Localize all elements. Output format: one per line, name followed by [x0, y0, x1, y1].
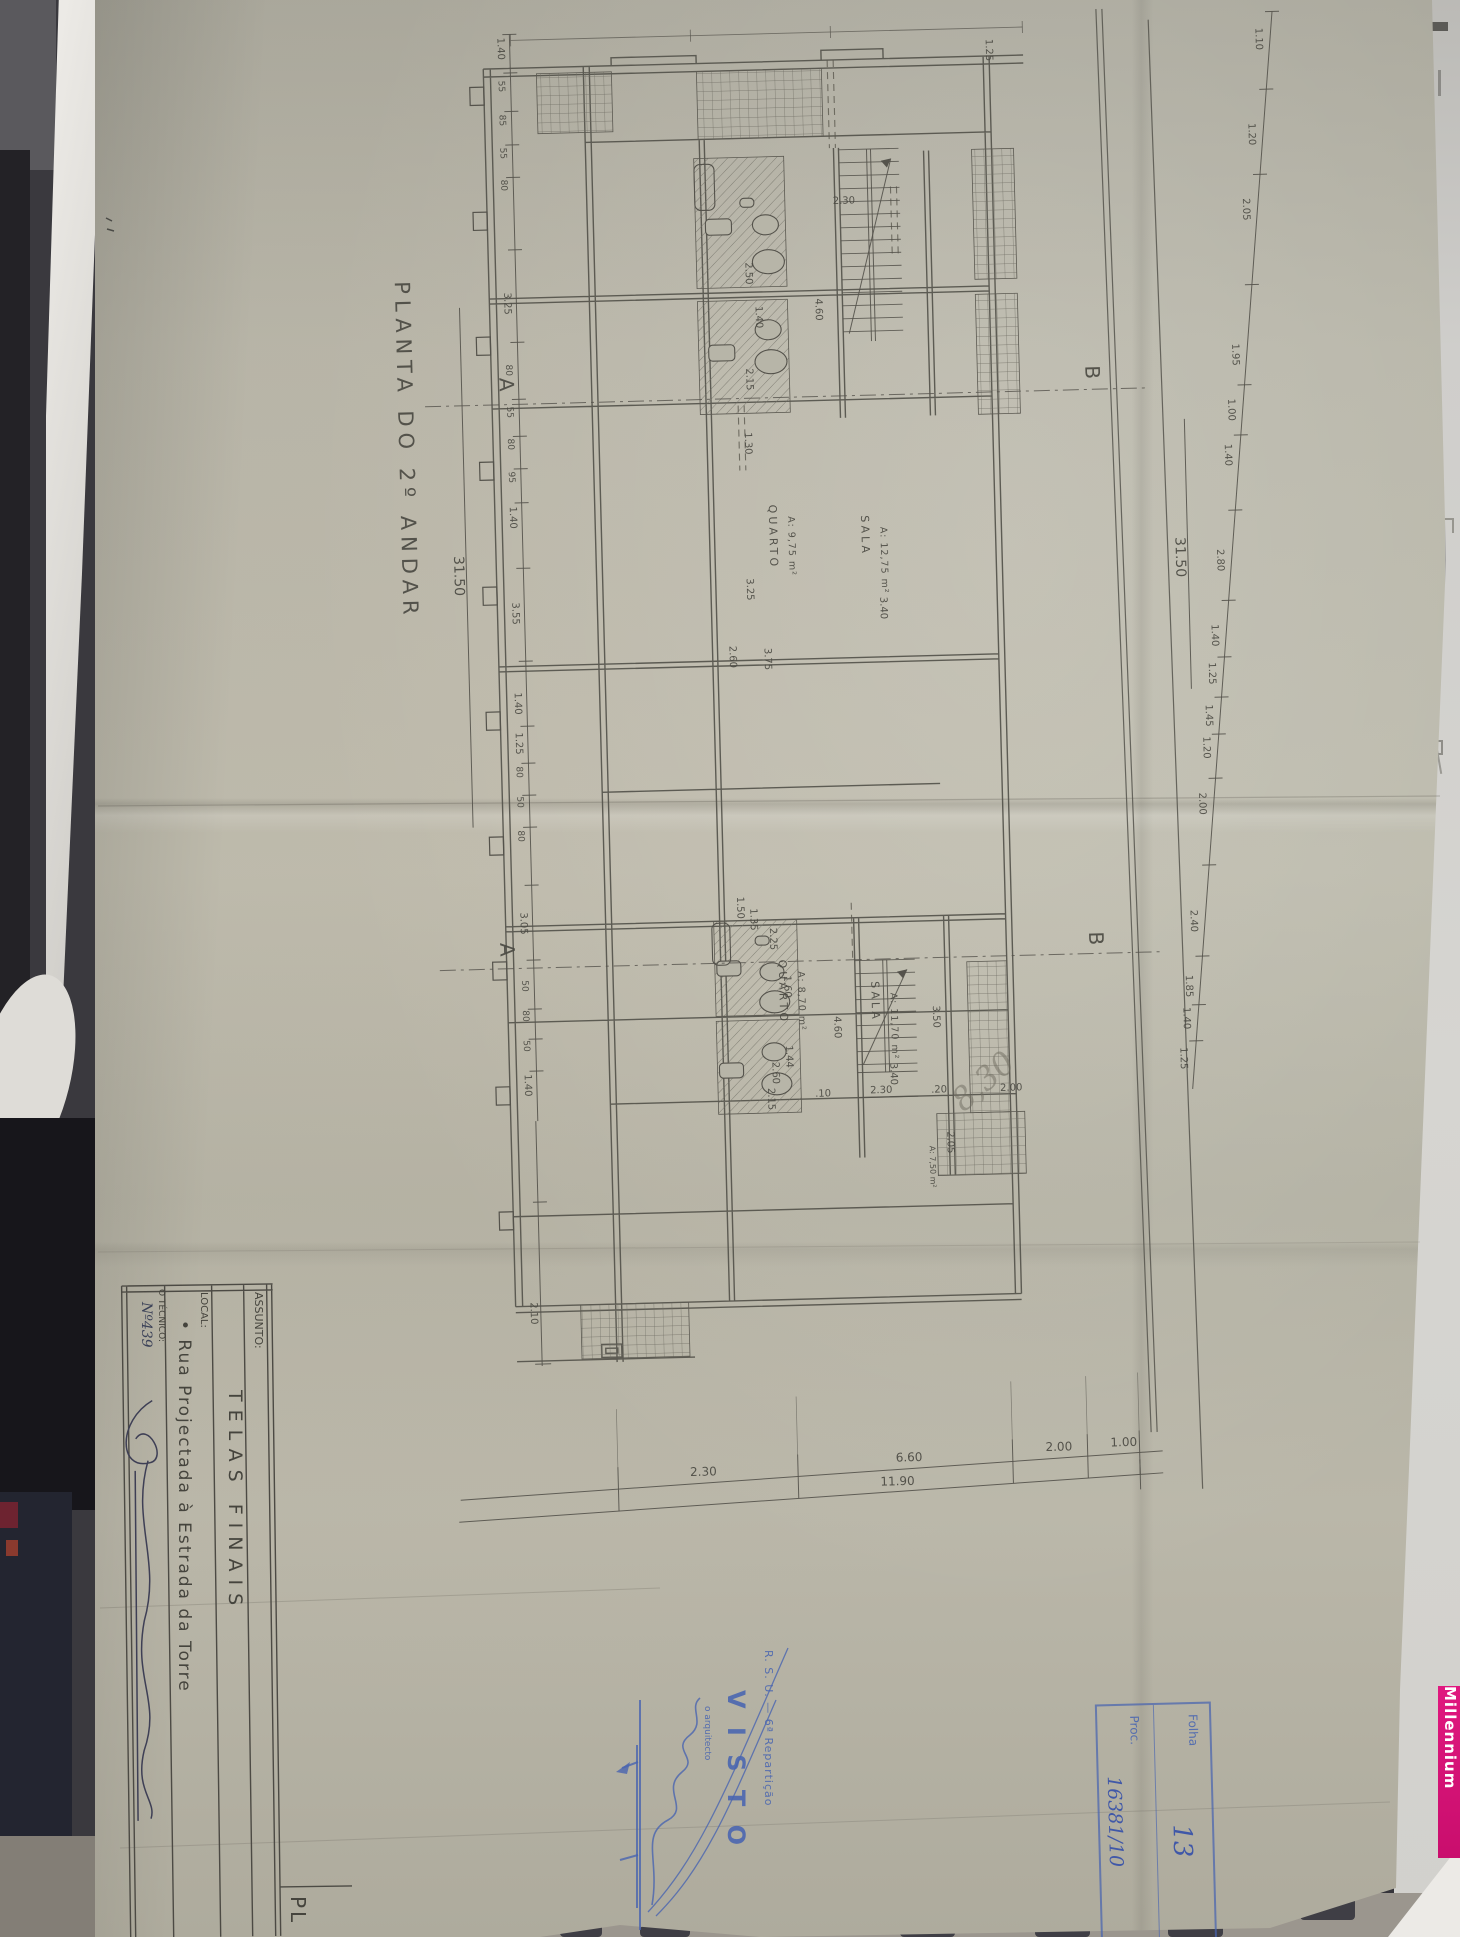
tecnico-number: Nº439 [138, 1302, 154, 1348]
facade-pilaster [493, 962, 507, 980]
section-marker-b: B [1080, 365, 1104, 379]
balcony-area-label: A: 7,50 m² [928, 1146, 938, 1188]
assunto-value: TELAS FINAIS [224, 1390, 246, 1613]
right-chain-dim: 1.45 [1203, 704, 1215, 727]
left-chain-dim: 50 [514, 796, 524, 808]
left-chain-dim: 80 [505, 438, 515, 450]
right-chain-dim: 2.00 [1196, 792, 1208, 815]
proc-column: Proc. 16381/10 [1097, 1705, 1159, 1937]
facade-pilaster [499, 1212, 513, 1230]
left-chain-dim: 55 [496, 81, 506, 93]
dimension-label: 2.50 [742, 262, 754, 285]
facade-pilaster [486, 712, 500, 730]
balcony-tiled-floor [972, 148, 1017, 279]
bottom-chain-total: 11.90 [880, 1474, 915, 1489]
proc-value: 16381/10 [1103, 1776, 1127, 1868]
right-chain-dim: 1.40 [1180, 1007, 1192, 1030]
left-chain-dim: 50 [521, 1040, 531, 1052]
left-chain-dim: 50 [519, 980, 529, 992]
visto-stamp-word: V I S T O [722, 1690, 750, 1850]
left-chain-dim: 3.25 [501, 292, 513, 315]
bath-fixture [740, 198, 754, 207]
right-chain-total: 31.50 [1171, 537, 1188, 577]
visto-stamp-line1: R. S. U. — 6ª Repartição [762, 1650, 775, 1807]
left-chain-dim: 1.25 [513, 732, 525, 755]
room-area-label: A: 12,75 m² [877, 527, 890, 594]
left-chain-dim: 2.10 [528, 1302, 540, 1325]
right-chain-dim: 2.05 [1240, 198, 1252, 221]
right-chain-dim: 1.40 [1209, 624, 1221, 647]
left-chain-total: 31.50 [450, 556, 467, 596]
wc-fixture [752, 214, 779, 235]
right-chain-dim: 1.25 [1177, 1047, 1189, 1070]
folha-label: Folha [1186, 1714, 1201, 1746]
bottom-chain-dim: 6.60 [896, 1450, 923, 1465]
bath-fixture [709, 345, 735, 362]
dimension-label: 3.40 [887, 1063, 899, 1086]
dimension-label: 1.25 [983, 39, 995, 62]
photo-of-floor-plan: Millennium [0, 0, 1460, 1937]
stair-lower [897, 969, 907, 978]
section-marker-a: A [494, 377, 518, 392]
left-chain-dim: 80 [503, 364, 513, 376]
facade-pilaster [489, 837, 503, 855]
left-chain-dim: 85 [496, 115, 506, 127]
dimension-label: 4.60 [812, 298, 824, 321]
section-marker-a: A [495, 942, 519, 957]
dimension-label: 1.60 [781, 975, 793, 998]
room-area-label: A: 8,70 m² [795, 971, 808, 1031]
facade-pilaster [476, 337, 490, 355]
margin-handwriting-marks [106, 218, 114, 231]
left-chain-dim: 95 [506, 471, 516, 483]
section-marker-b: B [1084, 931, 1108, 945]
dimension-label: 2.05 [944, 1131, 956, 1154]
left-chain-dim: 55 [504, 406, 514, 418]
floor-plan-drawing: PLANTA DO 2º ANDARQUARTOA: 9,75 m²SALAA:… [0, 0, 1460, 1937]
facade-pilaster [483, 587, 497, 605]
left-chain-dim: 3.55 [509, 602, 521, 625]
dimension-label: 2.15 [765, 1088, 777, 1111]
dimension-label: 2.30 [833, 195, 856, 207]
folha-proc-stamp-box: Proc. 16381/10 Folha 13 [1095, 1702, 1217, 1937]
dimension-label: 1.50 [734, 897, 746, 920]
left-chain-dim: 80 [514, 766, 524, 778]
bottom-chain-dim: 1.00 [1110, 1435, 1137, 1450]
right-chain-dim: 1.00 [1225, 399, 1237, 422]
right-chain-dim: 1.10 [1252, 28, 1264, 51]
right-chain-dim: 2.40 [1187, 910, 1199, 933]
dimension-label: 1.35 [747, 908, 759, 931]
facade-pilaster [473, 212, 487, 230]
left-chain-dim: 80 [498, 180, 508, 192]
bottom-chain-dim: 2.00 [1045, 1439, 1072, 1454]
dimension-label: .10 [815, 1088, 831, 1099]
left-chain-dim: 80 [520, 1010, 530, 1022]
dimension-label: 1.30 [742, 432, 754, 455]
left-chain-dim: 1.40 [522, 1074, 534, 1097]
room-name-label: SALA [868, 981, 882, 1022]
tecnico-label: O TÉCNICO: [156, 1289, 166, 1342]
dimension-label: 3.40 [877, 597, 889, 620]
room-name-label: QUARTO [766, 505, 781, 570]
left-chain-dim: 1.40 [512, 692, 524, 715]
right-chain-dim: 1.40 [1222, 444, 1234, 467]
balcony-tiled-floor [696, 68, 823, 139]
left-chain-dim: 1.40 [507, 506, 519, 529]
adjacent-cell-label: PL [286, 1896, 310, 1925]
wc-fixture [752, 249, 785, 274]
dimension-label: 1.40 [753, 306, 765, 329]
bath-fixture [705, 219, 731, 236]
dimension-label: 2.60 [726, 646, 738, 669]
balcony-tiled-floor [581, 1302, 690, 1359]
facade-pilaster [496, 1087, 510, 1105]
room-name-label: SALA [858, 515, 872, 556]
left-chain-dim: 55 [497, 148, 507, 160]
right-chain-dim: 1.20 [1245, 123, 1257, 146]
dimension-label: 2.60 [769, 1062, 781, 1085]
left-chain-dim: 3.05 [517, 912, 529, 935]
dimension-label: 2.15 [743, 368, 755, 391]
dimension-label: 3.75 [761, 648, 773, 671]
dimension-label: 4.60 [831, 1016, 843, 1039]
bath-fixture [719, 1063, 743, 1079]
visto-stamp-sub: o arquitecto [702, 1706, 712, 1760]
folha-value: 13 [1166, 1824, 1197, 1858]
folha-column: Folha 13 [1152, 1704, 1215, 1937]
right-chain-dim: 1.25 [1206, 662, 1218, 685]
facade-pilaster [480, 462, 494, 480]
balcony-tiled-floor [536, 72, 613, 134]
wc-fixture [762, 1043, 786, 1062]
room-area-label: A: 11,70 m² [888, 993, 901, 1060]
right-chain-dim: 2.80 [1214, 549, 1226, 572]
room-area-label: A: 9,75 m² [785, 516, 798, 576]
dimension-label: 1.44 [783, 1045, 795, 1068]
section-lines [425, 388, 1160, 971]
right-chain-dim: 1.95 [1229, 343, 1241, 366]
dimension-label: 3.25 [744, 578, 756, 601]
assunto-label: ASSUNTO: [252, 1292, 265, 1349]
wc-fixture [755, 349, 788, 374]
lot-boundary-lines [1096, 7, 1203, 1490]
left-chain-dim: 80 [515, 830, 525, 842]
dimension-label: 2.25 [767, 928, 779, 951]
drawing-title: PLANTA DO 2º ANDAR [390, 281, 423, 621]
proc-label: Proc. [1127, 1715, 1142, 1745]
stamp-signature [652, 1698, 700, 1905]
right-chain-dim: 1.85 [1183, 975, 1195, 998]
bottom-chain-dim: 2.30 [690, 1464, 717, 1479]
facade-pilaster [470, 87, 484, 105]
dimension-label: 3.50 [930, 1005, 942, 1028]
local-label: LOCAL: [198, 1292, 209, 1328]
balcony-tiled-floor [975, 293, 1020, 414]
local-value: • Rua Projectada à Estrada da Torre [174, 1320, 194, 1693]
dimension-label: 2.30 [870, 1085, 893, 1097]
left-chain-dim: 1.40 [494, 38, 506, 61]
right-chain-dim: 1.20 [1200, 736, 1212, 759]
